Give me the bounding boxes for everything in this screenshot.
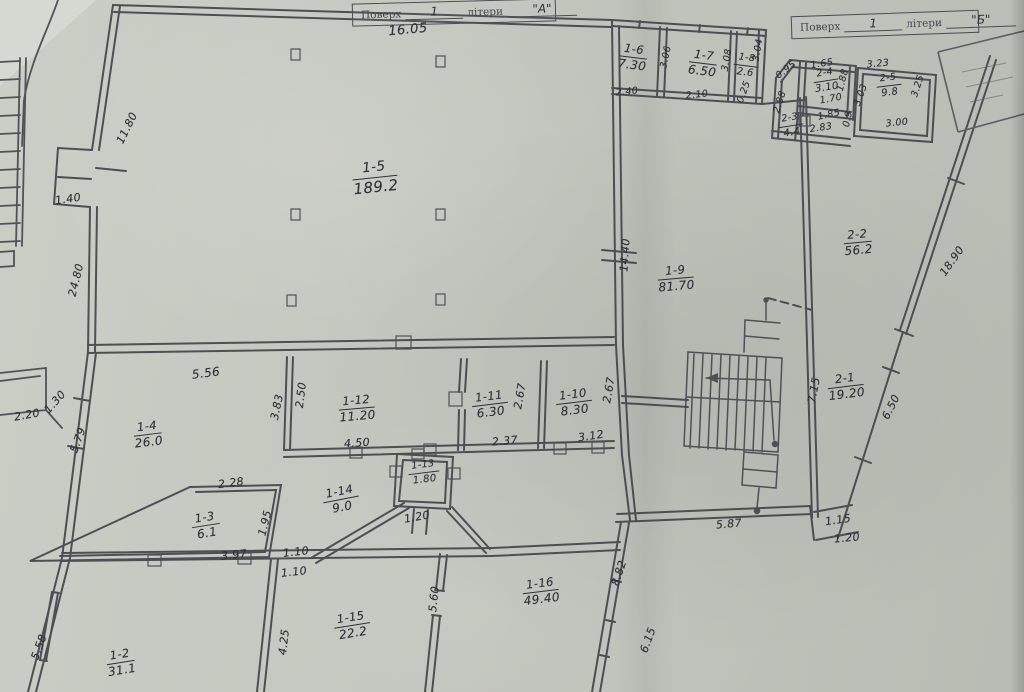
letters-value: "А" — [507, 2, 577, 18]
floor-plan-scan: Поверх 1 літери "А" Поверх 1 літери "Б" … — [0, 0, 1024, 692]
floor-label: Поверх — [361, 8, 402, 21]
dim-door-a: 1.10 — [282, 544, 309, 560]
room-label-2-3: 2-34.4 — [777, 112, 805, 141]
letters-label: літери — [906, 17, 942, 30]
room-area: 56.2 — [844, 242, 874, 259]
room-label-2-2: 2-256.2 — [843, 227, 874, 259]
dim-door-b: 1.10 — [280, 564, 307, 580]
letters-label: літери — [467, 6, 503, 19]
left-annex — [0, 0, 62, 428]
dim-1-15-right: 5.60 — [426, 585, 442, 612]
dim-1-12-bottom: 4.50 — [344, 436, 371, 451]
room-label-1-13: 1-131.80 — [407, 458, 441, 487]
dim-1-9-left: 14.40 — [617, 238, 632, 272]
dim-jog-1-20: 1.20 — [833, 530, 860, 545]
room-area: 81.70 — [658, 278, 696, 296]
dim-2-5-bottom: 3.00 — [885, 116, 909, 129]
dim-1-7-bottom: 2.10 — [685, 88, 709, 101]
room-label-1-5: 1-5189.2 — [351, 158, 399, 198]
room-label-1-6: 1-67.30 — [617, 41, 649, 74]
room-label-1-7: 1-76.50 — [687, 47, 719, 80]
floor-plan-drawing — [0, 0, 1024, 692]
floor-label: Поверх — [800, 21, 841, 34]
walls — [28, 5, 996, 692]
room-label-1-16: 1-1649.40 — [521, 575, 561, 609]
letters-value: "Б" — [946, 12, 1016, 28]
room-label-1-3: 1-36.1 — [190, 509, 222, 543]
room-label-1-12: 1-1211.20 — [338, 392, 377, 425]
room-area: 11.20 — [339, 408, 377, 426]
stairs-direction-arrow — [706, 373, 778, 447]
dim-1-9-bottom: 5.87 — [715, 516, 742, 531]
scan-edge-shadow — [1010, 0, 1024, 692]
room-label-1-10: 1-108.30 — [554, 386, 593, 420]
stairs — [684, 298, 782, 514]
dim-2-5-top: 3.23 — [866, 57, 890, 70]
floor-value: 1 — [405, 5, 463, 21]
dim-1-3-bottom: 3.97 — [220, 547, 247, 563]
room-label-1-4: 1-426.0 — [132, 418, 164, 451]
dim-1-6-bottom: 2.40 — [615, 85, 639, 98]
room-label-1-9: 1-981.70 — [657, 262, 696, 295]
door-and-column-marks — [148, 49, 810, 566]
dim-1-11-bottom: 2.37 — [491, 433, 518, 448]
floor-value: 1 — [844, 16, 902, 32]
room-label-2-1: 2-119.20 — [826, 370, 866, 404]
room-label-1-2: 1-231.1 — [105, 646, 138, 680]
room-label-1-11: 1-116.30 — [470, 388, 509, 422]
room-label-2-5: 2-59.8 — [875, 72, 903, 100]
room-label-1-15: 1-1522.2 — [332, 608, 372, 643]
